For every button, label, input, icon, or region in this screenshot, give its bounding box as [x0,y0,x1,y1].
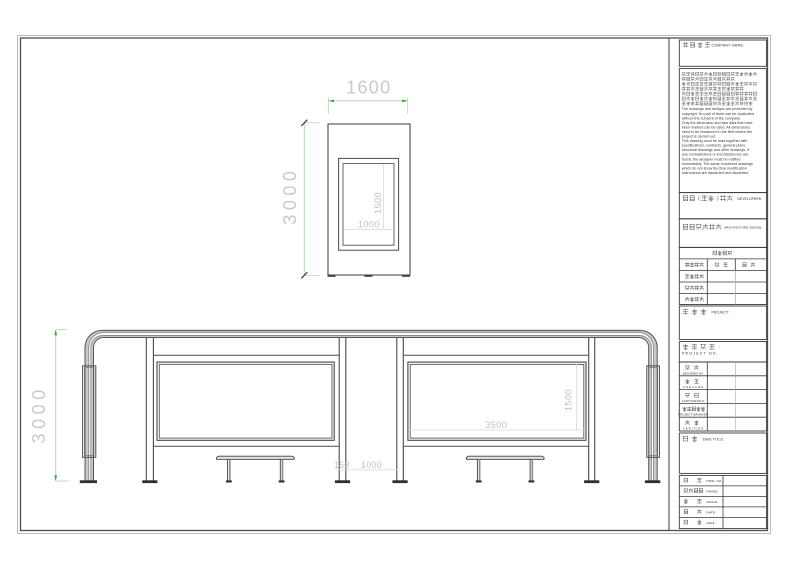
svg-text:DEVELOPERS:: DEVELOPERS: [738,197,763,201]
svg-text:PROJECT:: PROJECT: [712,310,730,314]
svg-text:DATE:: DATE: [707,511,717,515]
svg-text:specifications, contracts, gen: specifications, contracts, general plans… [682,144,746,148]
svg-text:3000: 3000 [280,167,300,225]
svg-text:3000: 3000 [29,385,49,443]
svg-text:been marked can be used. All d: been marked can be used. All dimensions [682,125,750,129]
svg-text:LEAF:: LEAF: [707,521,716,525]
svg-text:1000: 1000 [358,219,380,229]
svg-text:1000: 1000 [361,460,382,470]
svg-text:150: 150 [334,460,350,470]
svg-text:C H E C K E D: C H E C K E D [683,385,703,389]
svg-text:COMPANY NAME:: COMPANY NAME: [712,43,745,47]
svg-text:1600: 1600 [346,77,391,97]
svg-text:need to be measured in the fie: need to be measured in the field before … [682,130,752,134]
svg-text:immediately. The same numbered: immediately. The same numbered drawings [682,162,753,166]
svg-text:1500: 1500 [563,389,573,411]
svg-text:V E R I F I E R: V E R I F I E R [683,427,704,431]
svg-text:structural drawings and other: structural drawings and other drawings. … [682,148,750,152]
svg-text:DWG TITLE:: DWG TITLE: [703,438,724,442]
svg-text:PROJECT MANAGER: PROJECT MANAGER [678,413,708,417]
svg-text:This drawing must be read toge: This drawing must be read together with [682,139,748,143]
svg-text:The drawings and designs are p: The drawings and designs are protected b… [682,107,753,111]
svg-text:found, the designer must be no: found, the designer must be notified [682,157,741,161]
svg-text:Only the dimension and axis da: Only the dimension and axis data that ha… [682,121,753,125]
svg-text:copyright. No part of them can: copyright. No part of them can be duplic… [682,112,754,116]
svg-text:CARTOGRAPHY: CARTOGRAPHY [682,399,705,403]
svg-text:SCALE:: SCALE: [707,500,719,504]
svg-text:without the consent of the com: without the consent of the company. [682,116,741,120]
svg-text:which do not show the final mo: which do not show the final modification [682,166,747,170]
svg-text:1500: 1500 [373,192,383,214]
svg-text:DWG. NO.:: DWG. NO.: [707,479,724,483]
svg-text:PHASE:: PHASE: [707,490,719,494]
svg-text:3500: 3500 [485,420,507,430]
svg-text:ARCHITECTURE DESIGN:: ARCHITECTURE DESIGN: [724,226,762,230]
svg-text:project is carried out.: project is carried out. [682,135,716,139]
svg-text:any contradictions or inconsis: any contradictions or inconsistencies ar… [682,153,748,157]
svg-text:instructions are discarded and: instructions are discarded and discarded… [682,171,749,175]
svg-text:DESIGNED BY: DESIGNED BY [683,371,704,375]
svg-text:PROJECT NO.: PROJECT NO. [682,352,719,356]
